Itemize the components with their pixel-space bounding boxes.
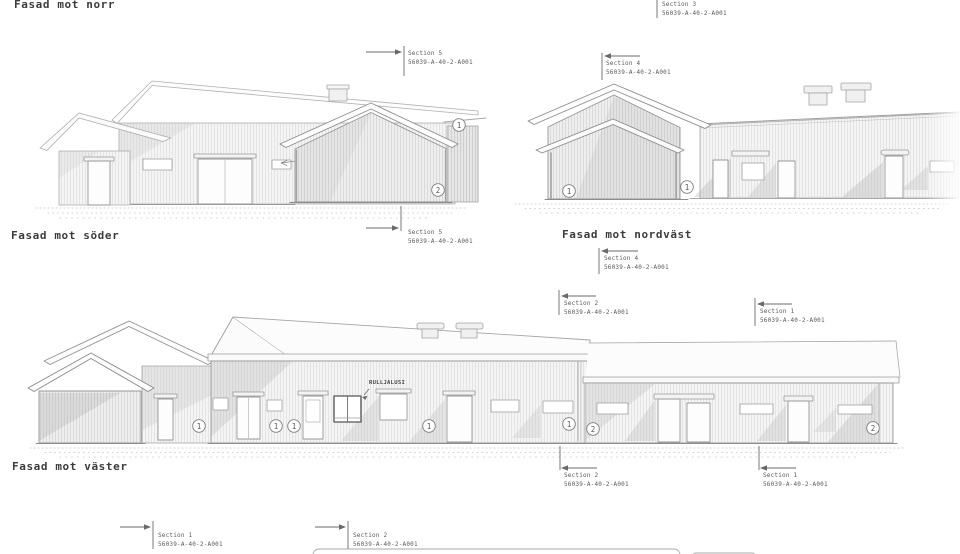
drawing-number: 56039-A-40-2-A001 (564, 480, 629, 489)
section-marker-3-top: Section 3 56039-A-40-2-A001 (662, 0, 727, 19)
door (658, 399, 680, 442)
rear-gable-building (44, 321, 214, 365)
ground-texture (30, 448, 905, 457)
door (88, 161, 110, 205)
section-marker-2-west-top: Section 2 56039-A-40-2-A001 (564, 299, 629, 318)
section-marker-1-strip: Section 1 56039-A-40-2-A001 (158, 531, 223, 550)
door-canopy (732, 151, 769, 156)
roller-shutter-label: RULLJALUSI (369, 380, 405, 386)
ground-texture (515, 204, 950, 213)
door (447, 396, 472, 442)
fascia (583, 377, 899, 383)
elevation-sheet: 1 2 (0, 0, 960, 554)
section-arrows (120, 0, 796, 549)
drawing-number: 56039-A-40-2-A001 (604, 263, 669, 272)
drawing-number: 56039-A-40-2-A001 (408, 237, 473, 246)
section-marker-2-west-bottom: Section 2 56039-A-40-2-A001 (564, 471, 629, 490)
keynote-bubble: 1 (563, 185, 576, 198)
keynote-bubble: 1 (288, 420, 301, 433)
svg-text:1: 1 (197, 422, 202, 431)
section-marker-2-strip: Section 2 56039-A-40-2-A001 (353, 531, 418, 550)
drawing-number: 56039-A-40-2-A001 (564, 308, 629, 317)
svg-text:1: 1 (292, 422, 297, 431)
view-fasad-vaster: 1 1 1 1 1 2 2 (28, 317, 905, 457)
drawing-number: 56039-A-40-2-A001 (760, 316, 825, 325)
section-label: Section 2 (564, 471, 629, 480)
door (885, 156, 903, 198)
title-fasad-mot-nordvast: Fasad mot nordväst (562, 228, 692, 241)
section-marker-1-west-top: Section 1 56039-A-40-2-A001 (760, 307, 825, 326)
gable-building (280, 103, 458, 203)
keynote-bubble: 2 (432, 184, 445, 197)
section-marker-4-top: Section 4 56039-A-40-2-A001 (606, 59, 671, 78)
fascia (208, 354, 590, 361)
section-marker-4-bottom: Section 4 56039-A-40-2-A001 (604, 254, 669, 273)
window (740, 404, 773, 414)
door-canopy (443, 391, 475, 395)
drawing-number: 56039-A-40-2-A001 (662, 9, 727, 18)
keynote-bubble: 1 (681, 181, 694, 194)
svg-text:1: 1 (457, 121, 462, 130)
drawing-number: 56039-A-40-2-A001 (353, 540, 418, 549)
section-marker-1-west-bottom: Section 1 56039-A-40-2-A001 (763, 471, 828, 490)
section-label: Section 2 (564, 299, 629, 308)
keynote-bubble: 1 (270, 420, 283, 433)
window-canopy (376, 389, 411, 393)
door-canopy (654, 394, 714, 399)
door (778, 161, 795, 198)
keynote-bubble: 2 (587, 423, 600, 436)
window (491, 400, 519, 412)
front-gable-building (28, 353, 154, 444)
chimney (327, 85, 349, 101)
door-canopy (84, 157, 114, 161)
window (380, 394, 407, 420)
section-label: Section 1 (158, 531, 223, 540)
door-canopy (784, 396, 813, 401)
view-fasad-nordvast: 1 1 (515, 78, 960, 213)
window (272, 160, 291, 169)
section-label: Section 3 (662, 0, 727, 9)
keynote-bubble: 1 (423, 420, 436, 433)
section-label: Section 1 (760, 307, 825, 316)
view-fasad-soder: 1 2 (36, 81, 486, 218)
svg-text:1: 1 (567, 187, 572, 196)
door (713, 160, 728, 198)
svg-text:2: 2 (591, 425, 596, 434)
keynote-bubble: 1 (193, 420, 206, 433)
window (143, 159, 172, 170)
drawing-number: 56039-A-40-2-A001 (158, 540, 223, 549)
drawing-number: 56039-A-40-2-A001 (408, 58, 473, 67)
svg-text:1: 1 (427, 422, 432, 431)
ground-texture (36, 208, 468, 218)
door-canopy (298, 391, 328, 395)
window (543, 401, 573, 413)
title-fasad-mot-vaster: Fasad mot väster (12, 460, 128, 473)
window (838, 405, 872, 414)
door (158, 399, 173, 440)
background-building (690, 78, 960, 208)
svg-text:1: 1 (685, 183, 690, 192)
svg-text:1: 1 (274, 422, 279, 431)
section-label: Section 5 (408, 49, 473, 58)
door (687, 403, 710, 442)
side-wing (444, 118, 486, 202)
drawing-number: 56039-A-40-2-A001 (606, 68, 671, 77)
section-label: Section 4 (604, 254, 669, 263)
window (597, 403, 628, 414)
door-canopy (194, 154, 256, 158)
title-fasad-mot-norr: Fasad mot norr (14, 0, 115, 11)
door-canopy (881, 150, 909, 155)
section-marker-5-bottom: Section 5 56039-A-40-2-A001 (408, 228, 473, 247)
door (788, 401, 809, 442)
svg-text:1: 1 (567, 420, 572, 429)
svg-text:2: 2 (871, 424, 876, 433)
keynote-bubble: 1 (453, 119, 466, 132)
section-label: Section 5 (408, 228, 473, 237)
section-marker-5-top: Section 5 56039-A-40-2-A001 (408, 49, 473, 68)
roller-shutter-window (334, 396, 361, 422)
low-building (583, 341, 900, 444)
keynote-bubble: 2 (867, 422, 880, 435)
window (742, 163, 764, 180)
fade-overlay (925, 78, 960, 208)
svg-text:2: 2 (436, 186, 441, 195)
title-fasad-mot-soder: Fasad mot söder (11, 229, 119, 242)
roof-vent (804, 83, 871, 105)
keynote-bubble: 1 (563, 418, 576, 431)
door-canopy (154, 394, 177, 398)
section-label: Section 4 (606, 59, 671, 68)
window (267, 400, 282, 411)
door-canopy (233, 392, 264, 396)
section-label: Section 1 (763, 471, 828, 480)
next-sheet-edges (313, 549, 756, 554)
drawing-number: 56039-A-40-2-A001 (763, 480, 828, 489)
section-label: Section 2 (353, 531, 418, 540)
window (213, 398, 228, 410)
